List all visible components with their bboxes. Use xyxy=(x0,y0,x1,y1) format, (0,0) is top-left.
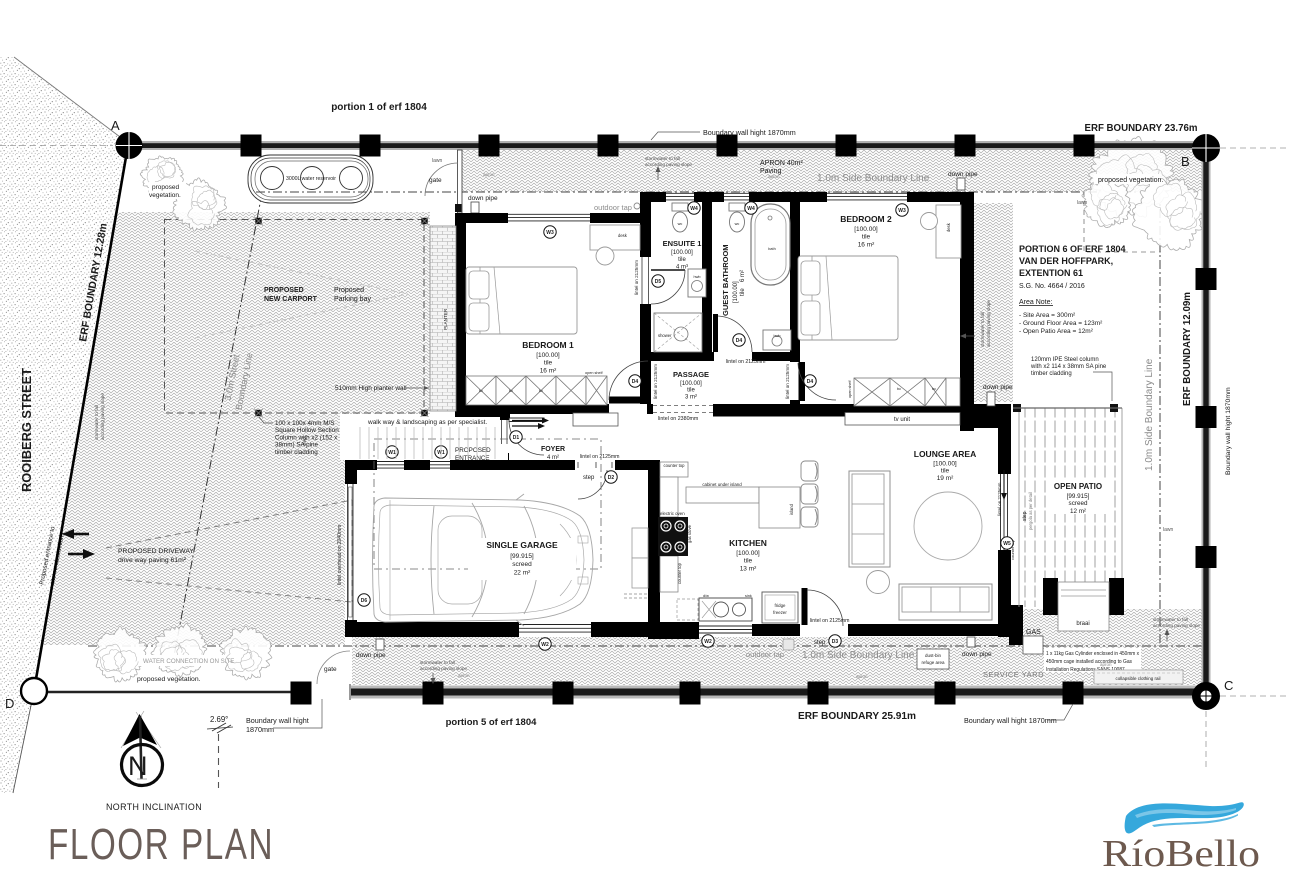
svg-text:D: D xyxy=(5,696,14,711)
svg-text:4 m³: 4 m³ xyxy=(676,265,688,271)
svg-text:W3: W3 xyxy=(546,230,554,236)
svg-text:shower: shower xyxy=(658,333,672,338)
svg-text:D4: D4 xyxy=(736,338,743,344)
svg-text:bc: bc xyxy=(539,389,543,393)
svg-text:according paving slope: according paving slope xyxy=(100,393,105,440)
svg-text:[100.00]: [100.00] xyxy=(933,461,957,468)
svg-text:Square Hollow Section: Square Hollow Section xyxy=(275,427,339,434)
svg-text:step: step xyxy=(302,437,307,446)
svg-text:SERVICE YARD: SERVICE YARD xyxy=(983,670,1044,679)
svg-text:stormwater to fall: stormwater to fall xyxy=(1153,617,1188,622)
svg-text:22 m²: 22 m² xyxy=(514,570,531,577)
svg-text:hwb: hwb xyxy=(694,275,701,279)
svg-text:6 m²: 6 m² xyxy=(740,270,746,282)
svg-text:refuge area: refuge area xyxy=(921,660,945,665)
svg-text:13 m²: 13 m² xyxy=(740,566,757,573)
svg-text:dust-bin: dust-bin xyxy=(925,653,942,658)
svg-text:with x2 114 x 38mm SA pine: with x2 114 x 38mm SA pine xyxy=(1030,364,1107,370)
svg-text:wc: wc xyxy=(735,222,740,226)
svg-text:lawn: lawn xyxy=(432,158,443,164)
svg-text:PORTION 6 OF ERF 1804: PORTION 6 OF ERF 1804 xyxy=(1019,244,1126,254)
svg-text:screed: screed xyxy=(512,561,532,568)
svg-text:gate: gate xyxy=(324,666,337,673)
svg-text:OPEN PATIO: OPEN PATIO xyxy=(1054,482,1102,491)
svg-text:apron: apron xyxy=(1100,662,1112,667)
svg-text:[100.00]: [100.00] xyxy=(671,250,693,256)
svg-text:lintel on 2125mm: lintel on 2125mm xyxy=(726,359,766,365)
svg-text:down pipe: down pipe xyxy=(468,195,498,202)
svg-text:BEDROOM 2: BEDROOM 2 xyxy=(840,214,892,224)
svg-text:PLANTER: PLANTER xyxy=(443,308,448,330)
svg-text:open shelf: open shelf xyxy=(585,371,603,375)
svg-text:C: C xyxy=(1224,678,1233,693)
svg-text:desk: desk xyxy=(618,233,628,238)
svg-text:stormwater to fall: stormwater to fall xyxy=(980,312,985,347)
svg-text:proposed vegetation.: proposed vegetation. xyxy=(137,676,201,683)
svg-text:lawn: lawn xyxy=(1077,200,1088,206)
svg-text:100 x 100x 4mm M/S: 100 x 100x 4mm M/S xyxy=(275,420,335,427)
svg-text:proposed: proposed xyxy=(152,184,179,191)
svg-text:electric oven: electric oven xyxy=(660,511,685,516)
svg-text:W4: W4 xyxy=(690,206,698,212)
svg-text:according paving slope: according paving slope xyxy=(645,162,692,167)
svg-text:bc: bc xyxy=(932,387,936,391)
svg-text:W1: W1 xyxy=(388,450,396,456)
svg-text:according paving slope: according paving slope xyxy=(986,300,991,347)
svg-text:16 m²: 16 m² xyxy=(858,242,875,249)
svg-text:ERF BOUNDARY 23.76m: ERF BOUNDARY 23.76m xyxy=(1085,122,1198,134)
svg-text:[99.915]: [99.915] xyxy=(1067,493,1090,500)
svg-text:stormwater to fall: stormwater to fall xyxy=(420,660,455,665)
svg-text:SINGLE GARAGE: SINGLE GARAGE xyxy=(486,540,558,550)
svg-text:ERF BOUNDARY 25.91m: ERF BOUNDARY 25.91m xyxy=(798,710,916,722)
svg-text:outdoor tap: outdoor tap xyxy=(594,203,632,212)
svg-text:tile: tile xyxy=(744,558,753,565)
svg-text:fridge: fridge xyxy=(775,603,787,608)
svg-text:down pipe: down pipe xyxy=(983,384,1013,391)
svg-text:WATER CONNECTION ON SITE: WATER CONNECTION ON SITE xyxy=(143,658,234,665)
svg-text:1.0m Side Boundary Line: 1.0m Side Boundary Line xyxy=(802,650,915,661)
svg-text:gas stove: gas stove xyxy=(687,524,692,543)
svg-text:down pipe: down pipe xyxy=(962,651,992,658)
svg-text:counter top: counter top xyxy=(677,562,682,584)
svg-text:FOYER: FOYER xyxy=(541,446,565,453)
svg-text:portion 1 of erf 1804: portion 1 of erf 1804 xyxy=(331,102,427,113)
svg-text:lintel on 2125mm: lintel on 2125mm xyxy=(580,454,620,460)
svg-text:3 m²: 3 m² xyxy=(685,395,697,401)
svg-text:- Open Patio Area = 12m²: - Open Patio Area = 12m² xyxy=(1019,328,1094,335)
svg-text:timber cladding: timber cladding xyxy=(1031,371,1072,377)
svg-text:tv unit: tv unit xyxy=(894,417,910,423)
svg-text:apron: apron xyxy=(458,673,470,678)
svg-text:stormwater to fall: stormwater to fall xyxy=(94,405,99,440)
svg-text:tile: tile xyxy=(544,360,553,367)
svg-text:apron: apron xyxy=(856,674,868,679)
svg-text:1.0m Side Boundary Line: 1.0m Side Boundary Line xyxy=(1144,358,1155,471)
svg-text:screed: screed xyxy=(1069,500,1088,507)
svg-text:apron: apron xyxy=(768,174,780,179)
svg-text:[100.00]: [100.00] xyxy=(854,226,878,233)
svg-text:wc: wc xyxy=(678,222,683,226)
svg-text:[100.00]: [100.00] xyxy=(680,381,702,387)
svg-text:- Site Area = 300m²: - Site Area = 300m² xyxy=(1019,312,1076,319)
svg-text:lintel on 2125mm: lintel on 2125mm xyxy=(997,482,1002,516)
svg-text:D6: D6 xyxy=(361,598,368,604)
svg-text:bc: bc xyxy=(897,387,901,391)
svg-text:VAN DER HOFFPARK,: VAN DER HOFFPARK, xyxy=(1019,256,1113,266)
svg-text:D4: D4 xyxy=(807,379,814,385)
svg-text:drive way paving 61m²: drive way paving 61m² xyxy=(118,557,187,564)
svg-text:[100.00]: [100.00] xyxy=(733,281,739,303)
svg-text:Boundary wall hight 1870mm: Boundary wall hight 1870mm xyxy=(1225,387,1232,475)
svg-text:lintel on 2125mm: lintel on 2125mm xyxy=(785,364,790,399)
svg-text:- Ground Floor Area = 123m²: - Ground Floor Area = 123m² xyxy=(1019,320,1103,327)
svg-text:walk way & landscaping as per: walk way & landscaping as per specialist… xyxy=(367,419,487,426)
svg-text:counter top: counter top xyxy=(664,463,686,468)
svg-text:3000L water reservoir: 3000L water reservoir xyxy=(286,176,336,182)
svg-text:Boundary wall hight 1870mm: Boundary wall hight 1870mm xyxy=(964,716,1057,725)
svg-text:W2: W2 xyxy=(541,642,549,648)
svg-text:W2: W2 xyxy=(704,639,712,645)
svg-text:A: A xyxy=(111,118,120,133)
svg-text:cabinet under island: cabinet under island xyxy=(702,482,742,487)
svg-text:stormwater to fall: stormwater to fall xyxy=(645,156,680,161)
svg-text:B: B xyxy=(1181,154,1190,169)
svg-text:[99.915]: [99.915] xyxy=(510,553,534,560)
svg-text:1.0m Side Boundary Line: 1.0m Side Boundary Line xyxy=(817,173,930,184)
svg-text:BEDROOM 1: BEDROOM 1 xyxy=(522,340,574,350)
svg-text:sink: sink xyxy=(745,594,752,598)
svg-text:desk: desk xyxy=(946,222,951,232)
svg-text:according paving slope: according paving slope xyxy=(1153,623,1200,628)
svg-text:down pipe: down pipe xyxy=(356,652,386,659)
svg-text:pergola as per detail: pergola as per detail xyxy=(1028,492,1033,530)
svg-text:lintel on 2380mm: lintel on 2380mm xyxy=(658,416,699,422)
svg-text:outdoor tap: outdoor tap xyxy=(746,650,784,659)
svg-text:d/w: d/w xyxy=(703,594,709,598)
svg-text:D3: D3 xyxy=(832,639,839,645)
svg-text:EXTENTION 61: EXTENTION 61 xyxy=(1019,268,1083,278)
svg-text:step: step xyxy=(814,640,826,646)
svg-text:Proposed: Proposed xyxy=(334,287,364,294)
svg-text:ERF BOUNDARY 12.09m: ERF BOUNDARY 12.09m xyxy=(1181,292,1193,406)
svg-text:braai: braai xyxy=(1076,621,1089,627)
svg-text:LOUNGE AREA: LOUNGE AREA xyxy=(914,449,977,459)
svg-text:timber cladding: timber cladding xyxy=(275,449,318,456)
svg-text:APRON 40m²: APRON 40m² xyxy=(760,160,803,167)
svg-text:510mm High planter wall: 510mm High planter wall xyxy=(335,385,407,392)
svg-text:1 x 11kg Gas Cylinder enclosed: 1 x 11kg Gas Cylinder enclosed in 450mm … xyxy=(1046,651,1139,657)
svg-text:lawn: lawn xyxy=(1163,527,1174,533)
svg-text:freezer: freezer xyxy=(773,610,787,615)
svg-text:19 m²: 19 m² xyxy=(937,475,954,482)
svg-text:tile: tile xyxy=(678,257,686,263)
svg-text:open shelf: open shelf xyxy=(848,380,852,398)
svg-text:gate: gate xyxy=(429,177,442,184)
svg-text:bath: bath xyxy=(768,247,775,251)
svg-text:lintel on 2125mm: lintel on 2125mm xyxy=(810,618,850,624)
svg-text:collapsible clothing rail: collapsible clothing rail xyxy=(1115,676,1160,681)
svg-text:GAS: GAS xyxy=(1026,629,1041,636)
svg-text:N: N xyxy=(128,751,148,781)
svg-text:PROPOSED: PROPOSED xyxy=(264,287,304,294)
svg-text:D1: D1 xyxy=(513,435,520,441)
svg-text:hwb: hwb xyxy=(774,334,781,338)
svg-text:S.G. No. 4664 / 2016: S.G. No. 4664 / 2016 xyxy=(1019,283,1085,290)
svg-text:NORTH INCLINATION: NORTH INCLINATION xyxy=(106,802,202,812)
svg-text:Boundary wall hight: Boundary wall hight xyxy=(246,716,309,725)
svg-text:NEW CARPORT: NEW CARPORT xyxy=(264,296,318,303)
svg-text:tile: tile xyxy=(740,288,746,296)
svg-text:vegetation.: vegetation. xyxy=(149,192,181,199)
svg-text:D2: D2 xyxy=(608,475,615,481)
svg-text:portion 5 of erf 1804: portion 5 of erf 1804 xyxy=(446,717,538,728)
svg-text:W3: W3 xyxy=(898,208,906,214)
svg-text:lintel overhead on 2040mm: lintel overhead on 2040mm xyxy=(337,525,343,585)
svg-text:lintel on 2125mm: lintel on 2125mm xyxy=(653,364,658,399)
svg-text:Parking bay: Parking bay xyxy=(334,296,371,303)
svg-text:bc: bc xyxy=(479,389,483,393)
svg-text:step: step xyxy=(583,475,595,481)
svg-text:GUEST BATHROOM: GUEST BATHROOM xyxy=(721,244,730,316)
svg-text:120mm IPE Steel column: 120mm IPE Steel column xyxy=(1031,357,1099,363)
svg-text:PASSAGE: PASSAGE xyxy=(673,370,709,379)
svg-text:island: island xyxy=(789,503,794,515)
svg-text:Boundary wall hight 1870mm: Boundary wall hight 1870mm xyxy=(703,128,796,137)
svg-text:bc: bc xyxy=(509,389,513,393)
svg-text:W5: W5 xyxy=(1003,541,1011,547)
svg-text:[100.00]: [100.00] xyxy=(536,352,560,359)
svg-text:1870mm: 1870mm xyxy=(246,725,274,734)
svg-text:RíoBello: RíoBello xyxy=(1102,833,1260,875)
svg-text:4 m²: 4 m² xyxy=(547,455,559,461)
svg-text:tile: tile xyxy=(687,388,695,394)
svg-text:tile: tile xyxy=(941,468,950,475)
svg-text:lintel on 2125mm: lintel on 2125mm xyxy=(634,260,639,295)
svg-text:2.69°: 2.69° xyxy=(210,715,228,724)
svg-text:450mm cage installed according: 450mm cage installed according to Gas xyxy=(1046,659,1132,665)
svg-text:Area Note:: Area Note: xyxy=(1019,299,1053,306)
svg-text:down pipe: down pipe xyxy=(948,171,978,178)
svg-text:[100.00]: [100.00] xyxy=(736,550,760,557)
svg-text:PROPOSED DRIVEWAY: PROPOSED DRIVEWAY xyxy=(118,548,194,555)
svg-text:according paving slope: according paving slope xyxy=(420,666,467,671)
svg-text:ROOIBERG STREET: ROOIBERG STREET xyxy=(20,368,34,492)
svg-text:38mm) SA pine: 38mm) SA pine xyxy=(275,442,319,449)
svg-text:apron: apron xyxy=(483,172,495,177)
svg-text:proposed vegetation.: proposed vegetation. xyxy=(1098,177,1163,184)
svg-text:ENSUITE 1: ENSUITE 1 xyxy=(663,239,702,248)
svg-text:W4: W4 xyxy=(747,206,755,212)
svg-text:12 m²: 12 m² xyxy=(1070,508,1086,515)
svg-text:tile: tile xyxy=(862,234,871,241)
svg-text:16 m²: 16 m² xyxy=(540,368,557,375)
svg-text:D4: D4 xyxy=(632,379,639,385)
svg-text:D5: D5 xyxy=(655,279,662,285)
svg-text:FLOOR PLAN: FLOOR PLAN xyxy=(48,820,274,869)
svg-text:KITCHEN: KITCHEN xyxy=(729,538,767,548)
